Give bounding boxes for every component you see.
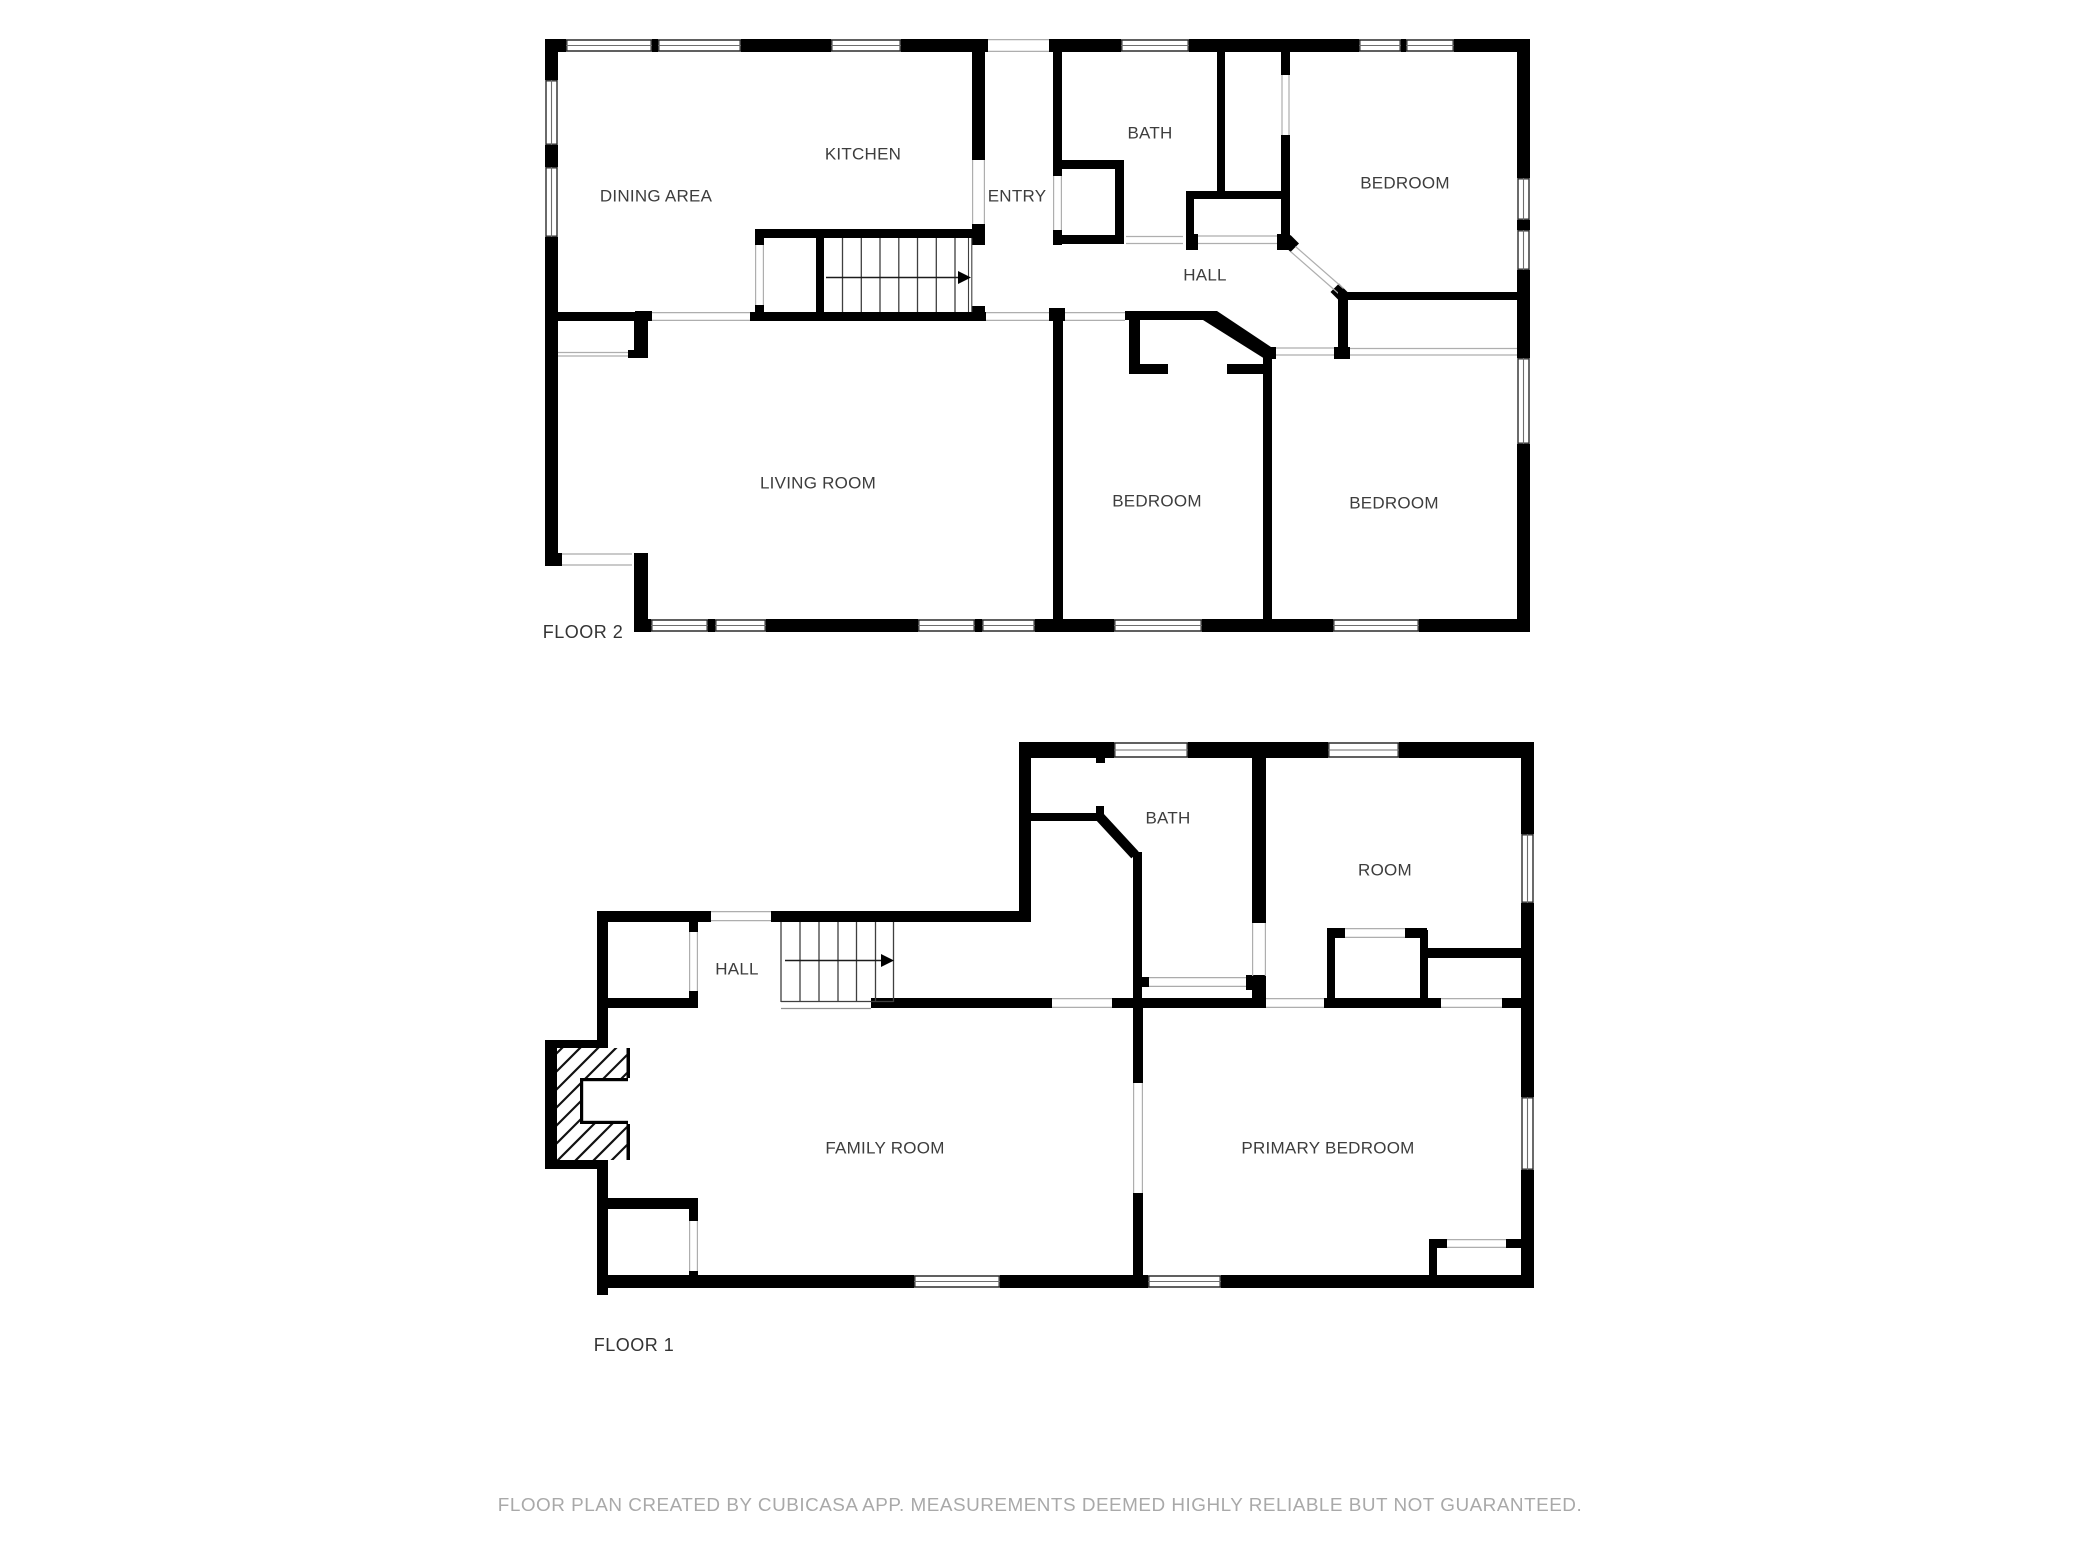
svg-text:BEDROOM: BEDROOM bbox=[1360, 174, 1450, 193]
svg-text:ROOM: ROOM bbox=[1358, 861, 1412, 880]
svg-text:BEDROOM: BEDROOM bbox=[1112, 492, 1202, 511]
svg-text:ENTRY: ENTRY bbox=[988, 187, 1047, 206]
svg-text:FLOOR 2: FLOOR 2 bbox=[543, 622, 624, 642]
svg-text:HALL: HALL bbox=[715, 960, 759, 979]
svg-text:DINING AREA: DINING AREA bbox=[600, 187, 713, 206]
svg-text:KITCHEN: KITCHEN bbox=[825, 145, 901, 164]
svg-text:FLOOR PLAN CREATED BY CUBICASA: FLOOR PLAN CREATED BY CUBICASA APP. MEAS… bbox=[498, 1495, 1582, 1516]
svg-text:BATH: BATH bbox=[1145, 809, 1190, 828]
svg-text:LIVING ROOM: LIVING ROOM bbox=[760, 474, 876, 493]
svg-text:FAMILY ROOM: FAMILY ROOM bbox=[825, 1139, 944, 1158]
svg-text:BEDROOM: BEDROOM bbox=[1349, 494, 1439, 513]
svg-text:FLOOR 1: FLOOR 1 bbox=[594, 1335, 675, 1355]
svg-text:HALL: HALL bbox=[1183, 266, 1227, 285]
svg-text:BATH: BATH bbox=[1127, 124, 1172, 143]
svg-text:PRIMARY BEDROOM: PRIMARY BEDROOM bbox=[1241, 1139, 1414, 1158]
